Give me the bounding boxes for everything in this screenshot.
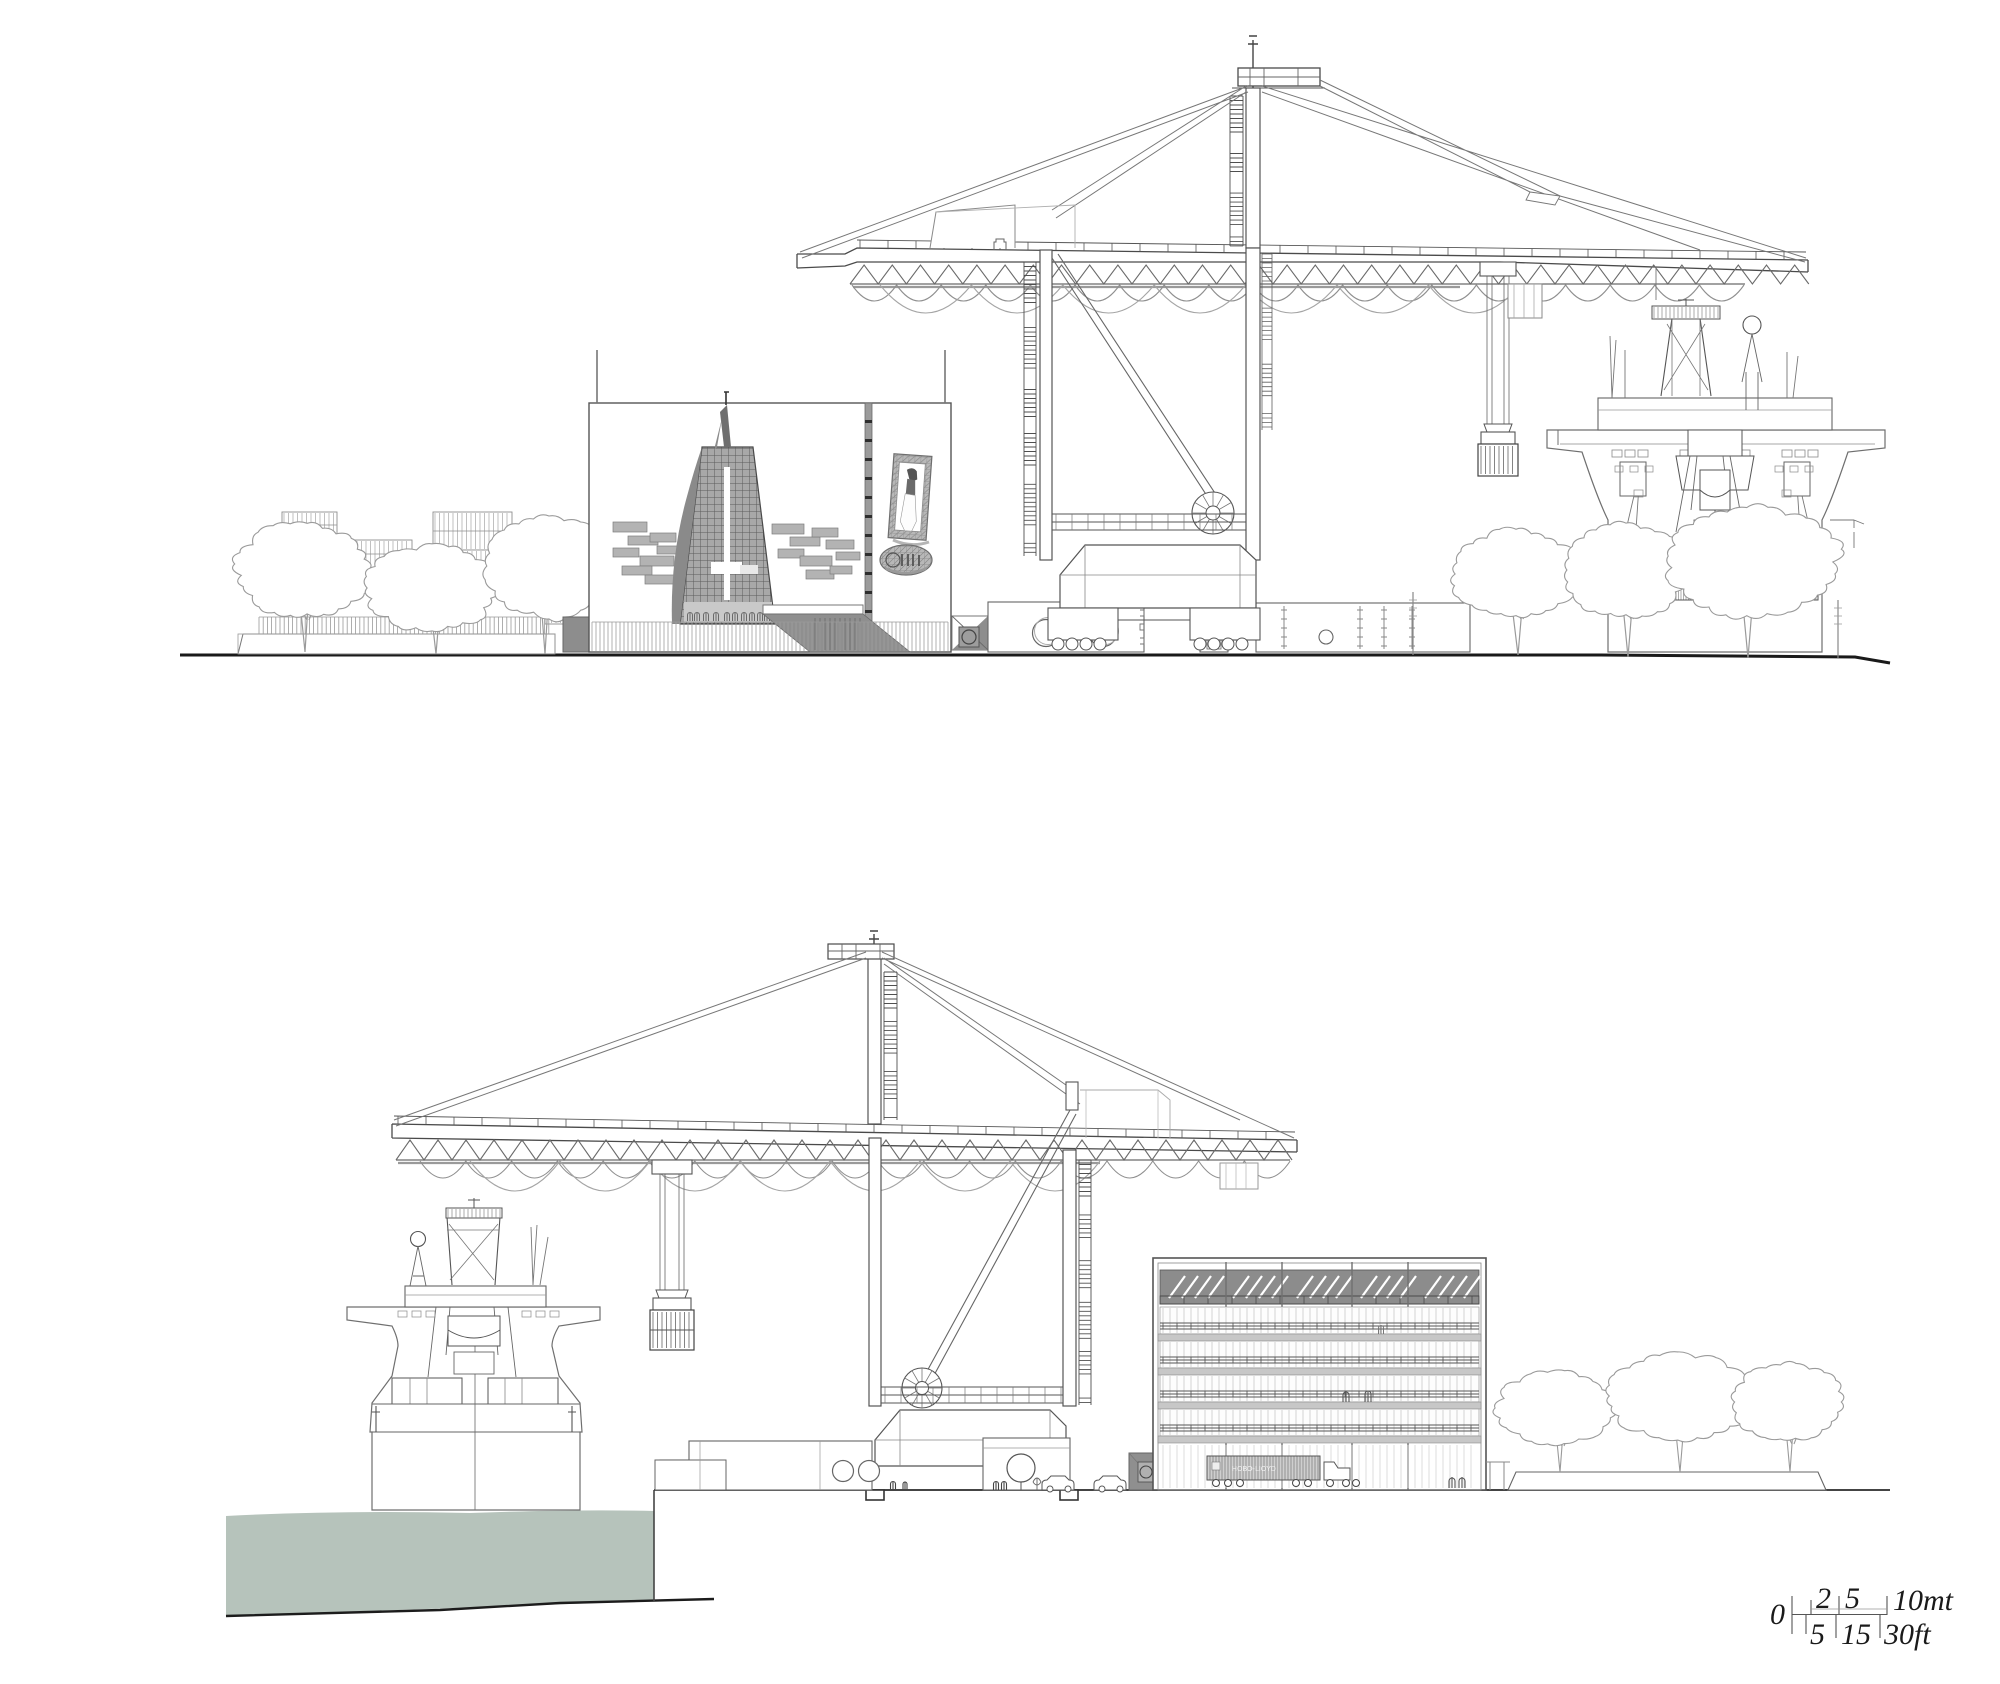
- svg-text:5: 5: [1810, 1618, 1825, 1651]
- svg-text:10mt: 10mt: [1893, 1584, 1954, 1617]
- svg-text:2: 2: [1816, 1582, 1831, 1615]
- svg-text:30ft: 30ft: [1883, 1618, 1931, 1651]
- svg-text:15: 15: [1841, 1618, 1871, 1651]
- svg-text:0: 0: [1770, 1598, 1785, 1631]
- svg-text:5: 5: [1845, 1582, 1860, 1615]
- svg-text:HOBO-LIOYD: HOBO-LIOYD: [1232, 1466, 1276, 1473]
